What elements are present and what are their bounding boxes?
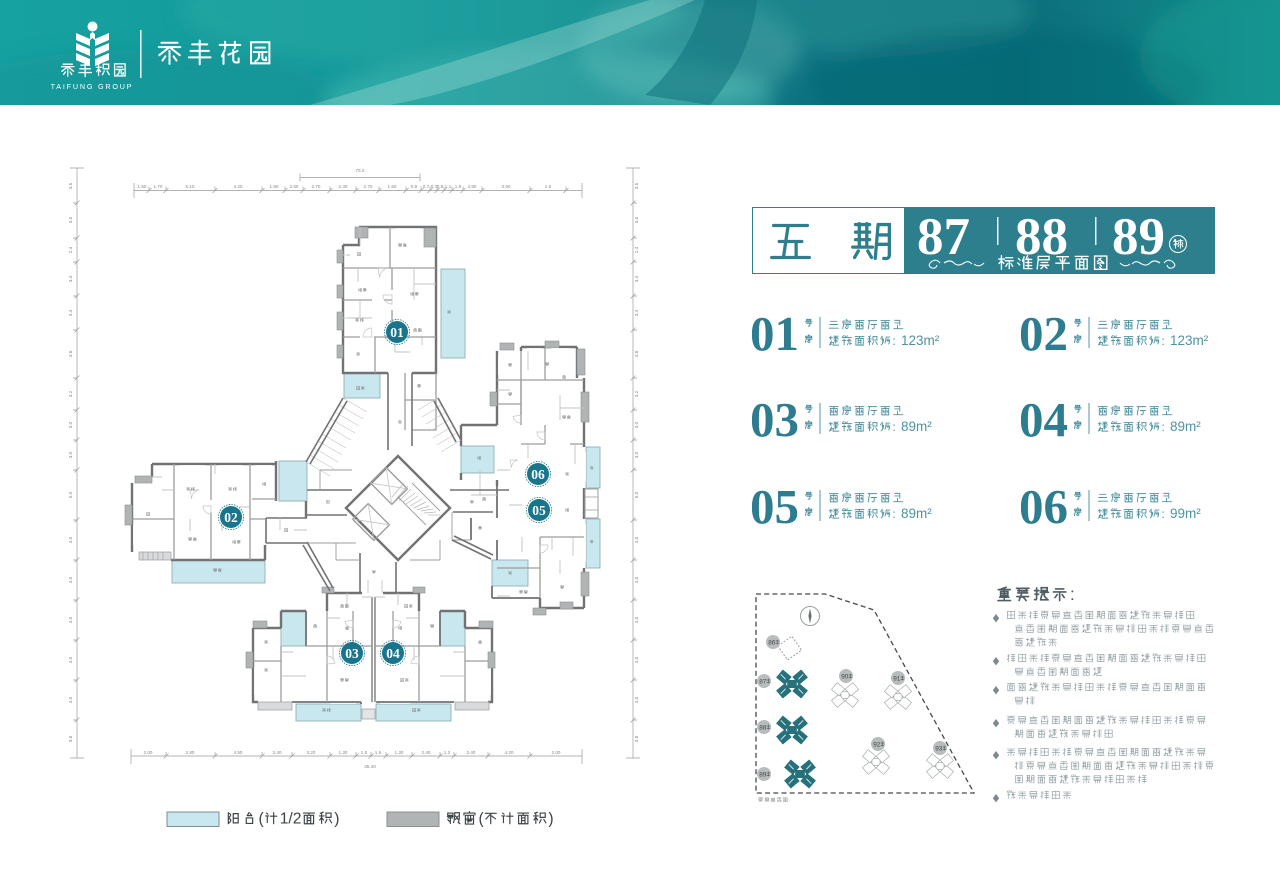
svg-text:89m²: 89m²: [901, 506, 932, 521]
svg-text:03: 03: [345, 646, 359, 661]
svg-text:123m²: 123m²: [901, 333, 940, 348]
svg-text:35.40: 35.40: [364, 764, 376, 769]
svg-text:01: 01: [752, 310, 799, 356]
svg-text:5.10: 5.10: [186, 184, 195, 189]
svg-text:4.0: 4.0: [68, 616, 73, 623]
svg-text:0.9: 0.9: [411, 184, 418, 189]
svg-text:4.50: 4.50: [234, 750, 243, 755]
svg-text:90: 90: [841, 673, 849, 680]
svg-text:3.2: 3.2: [68, 390, 73, 397]
svg-text:92: 92: [873, 741, 881, 748]
svg-text:3.5: 3.5: [634, 182, 639, 189]
svg-text::: :: [1161, 507, 1164, 521]
svg-text:3.20: 3.20: [307, 750, 316, 755]
svg-text:3.0: 3.0: [634, 451, 639, 458]
svg-text:99m²: 99m²: [1170, 506, 1201, 521]
svg-text:2.00: 2.00: [144, 750, 153, 755]
svg-text:3.5: 3.5: [68, 182, 73, 189]
svg-text:1.70: 1.70: [154, 184, 163, 189]
svg-text:1.50: 1.50: [388, 184, 397, 189]
svg-text:4.0: 4.0: [634, 616, 639, 623]
svg-text:05: 05: [752, 483, 799, 529]
svg-text:89m²: 89m²: [901, 419, 932, 434]
svg-text:01: 01: [390, 325, 404, 340]
svg-text::: :: [892, 334, 895, 348]
svg-text:4.20: 4.20: [505, 750, 514, 755]
svg-text:1.30: 1.30: [395, 750, 404, 755]
svg-text:4.80: 4.80: [468, 184, 477, 189]
svg-text:4.0: 4.0: [634, 536, 639, 543]
svg-text:75.0: 75.0: [356, 168, 365, 173]
svg-text:1.3: 1.3: [444, 750, 451, 755]
svg-text:2.80: 2.80: [186, 750, 195, 755]
svg-text:3.5: 3.5: [634, 216, 639, 223]
svg-text:02: 02: [1021, 310, 1068, 356]
svg-text::: :: [892, 420, 895, 434]
svg-text:1.1: 1.1: [445, 184, 452, 189]
svg-text:3.4: 3.4: [68, 275, 73, 282]
svg-text:3.60: 3.60: [502, 184, 511, 189]
svg-text:4.0: 4.0: [68, 536, 73, 543]
svg-text:2.00: 2.00: [552, 750, 561, 755]
svg-text:4.0: 4.0: [634, 576, 639, 583]
svg-text:89: 89: [759, 771, 767, 778]
svg-text:1.50: 1.50: [138, 184, 147, 189]
svg-text:123m²: 123m²: [1170, 333, 1209, 348]
svg-text:2.40: 2.40: [422, 750, 431, 755]
svg-text:4.0: 4.0: [68, 576, 73, 583]
svg-text:4.8: 4.8: [68, 350, 73, 357]
svg-text:5.0: 5.0: [634, 491, 639, 498]
svg-text:93: 93: [935, 745, 943, 752]
svg-text:0.9: 0.9: [437, 184, 444, 189]
svg-text:88: 88: [759, 724, 767, 731]
svg-text:3.4: 3.4: [68, 309, 73, 316]
svg-text:3.4: 3.4: [634, 275, 639, 282]
svg-text:87: 87: [917, 208, 970, 266]
svg-text:91: 91: [893, 675, 901, 682]
svg-text:4.0: 4.0: [634, 696, 639, 703]
svg-text:06: 06: [531, 467, 545, 482]
svg-text:3.40: 3.40: [467, 750, 476, 755]
svg-text:02: 02: [224, 510, 238, 525]
svg-text:3.8: 3.8: [634, 735, 639, 742]
svg-text:3.5: 3.5: [68, 216, 73, 223]
svg-text:1.90: 1.90: [270, 184, 279, 189]
svg-text:0.7: 0.7: [423, 184, 430, 189]
svg-text:4.0: 4.0: [68, 696, 73, 703]
svg-text:3.4: 3.4: [634, 309, 639, 316]
svg-text:1.9: 1.9: [455, 184, 462, 189]
svg-text:1.5: 1.5: [361, 750, 368, 755]
svg-text:4.8: 4.8: [634, 350, 639, 357]
svg-text:86: 86: [768, 639, 776, 646]
svg-text:3.0: 3.0: [634, 421, 639, 428]
svg-text:04: 04: [1021, 396, 1068, 442]
svg-text:87: 87: [759, 678, 767, 685]
svg-text:2.70: 2.70: [312, 184, 321, 189]
svg-text:2.4: 2.4: [634, 246, 639, 253]
svg-text:2.40: 2.40: [273, 750, 282, 755]
svg-text:3.8: 3.8: [68, 735, 73, 742]
svg-text:3.0: 3.0: [68, 451, 73, 458]
svg-text:1.30: 1.30: [339, 750, 348, 755]
svg-text:2.30: 2.30: [339, 184, 348, 189]
svg-text:2.60: 2.60: [290, 184, 299, 189]
svg-text:(: (: [259, 811, 265, 828]
svg-text:3.2: 3.2: [634, 390, 639, 397]
svg-text:4.0: 4.0: [68, 656, 73, 663]
svg-text:2.70: 2.70: [364, 184, 373, 189]
svg-text:4.0: 4.0: [634, 656, 639, 663]
svg-text::: :: [892, 507, 895, 521]
svg-text:2.4: 2.4: [68, 246, 73, 253]
svg-text:03: 03: [752, 396, 799, 442]
svg-text:89: 89: [1112, 208, 1165, 266]
svg-text:1.6: 1.6: [545, 184, 552, 189]
svg-text:06: 06: [1021, 483, 1068, 529]
svg-text:3.0: 3.0: [68, 421, 73, 428]
svg-text:4.20: 4.20: [234, 184, 243, 189]
svg-text:05: 05: [532, 503, 546, 518]
svg-text:(: (: [479, 811, 485, 828]
svg-text:1/2: 1/2: [280, 811, 302, 828]
svg-text:1.5: 1.5: [375, 750, 382, 755]
svg-text::: :: [1070, 584, 1075, 604]
svg-text:5.0: 5.0: [68, 491, 73, 498]
svg-text:89m²: 89m²: [1170, 419, 1201, 434]
svg-text:): ): [334, 811, 339, 828]
svg-text:TAIFUNG GROUP: TAIFUNG GROUP: [51, 82, 134, 91]
svg-text::: :: [1161, 420, 1164, 434]
svg-text:04: 04: [386, 646, 400, 661]
svg-text::: :: [1161, 334, 1164, 348]
svg-text:): ): [548, 811, 553, 828]
